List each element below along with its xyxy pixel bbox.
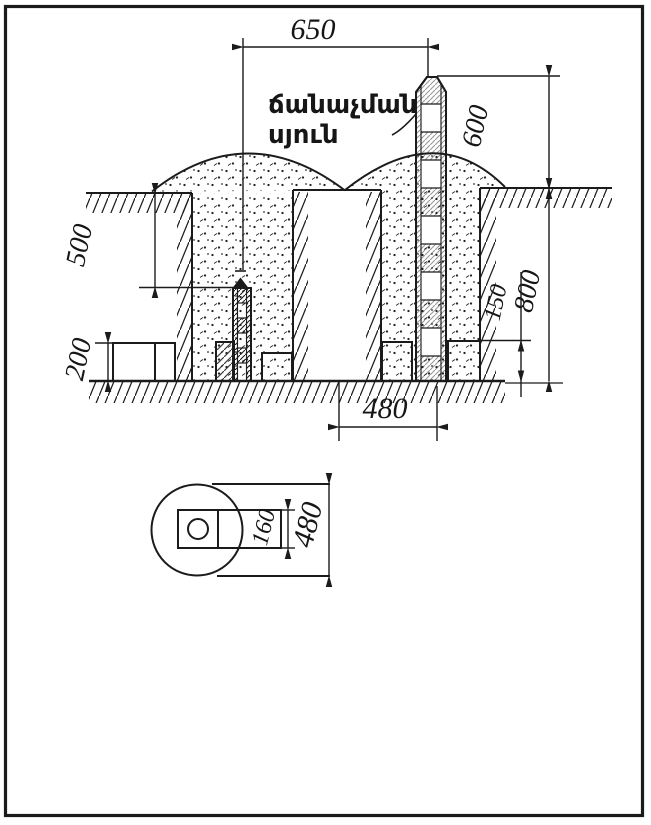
post-label-line1: ճանաչման xyxy=(268,90,418,120)
post-label-line2: սյուն xyxy=(268,120,339,150)
dim-200: 200 xyxy=(59,335,113,383)
dim-600-text: 600 xyxy=(456,102,495,150)
dim-160-plan-text: 160 xyxy=(247,507,281,548)
plan-post-center xyxy=(188,519,208,539)
section-view: ճանաչման սյուն 650 600 800 15 xyxy=(59,13,612,441)
dim-480-bottom-text: 480 xyxy=(363,392,408,425)
dim-200-text: 200 xyxy=(59,335,98,383)
plan-view: 160 480 xyxy=(152,484,331,576)
dim-800-text: 800 xyxy=(508,267,547,315)
backfill-dotted-fill xyxy=(152,153,505,380)
plan-mound-circle xyxy=(152,485,243,576)
post-label: ճանաչման սյուն xyxy=(268,90,418,150)
scanned-page: ճանաչման սյուն 650 600 800 15 xyxy=(0,0,651,825)
dim-650-text: 650 xyxy=(291,13,336,46)
dim-480-plan: 480 xyxy=(286,484,329,576)
dim-480-plan-text: 480 xyxy=(286,499,329,551)
dim-500-text: 500 xyxy=(60,221,99,269)
ledge-block xyxy=(113,343,175,381)
figure-drawing: ճանաչման սյուն 650 600 800 15 xyxy=(0,0,651,825)
identification-post xyxy=(416,77,446,381)
dim-800: 800 xyxy=(508,189,549,381)
